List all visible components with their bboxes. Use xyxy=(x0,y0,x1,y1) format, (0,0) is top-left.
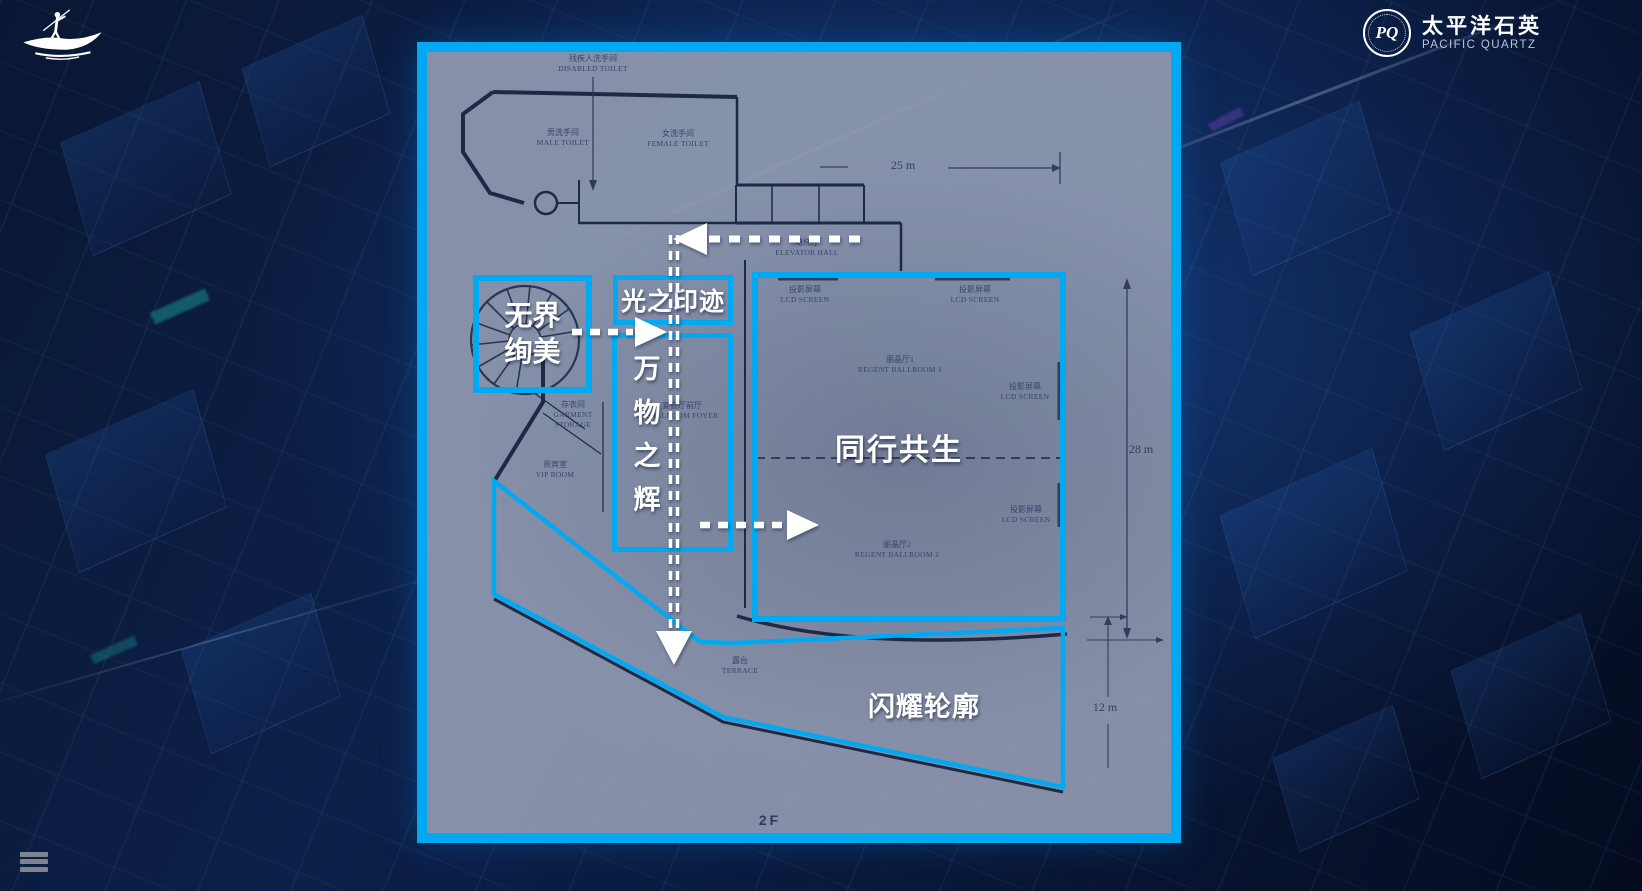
brand-name-en: PACIFIC QUARTZ xyxy=(1422,39,1542,51)
label-garment-storage: 存衣间 GARMENT STORAGE xyxy=(540,400,606,430)
boat-logo-icon xyxy=(16,6,108,64)
label-vip-room: 贵宾室 VIP ROOM xyxy=(536,460,575,480)
brand-text: 太平洋石英 PACIFIC QUARTZ xyxy=(1422,15,1542,51)
zone-label-shanyao-lunkuo[interactable]: 闪耀轮廓 xyxy=(868,685,980,724)
label-en: MALE TOILET xyxy=(537,138,589,148)
zone-box-guang-zhi-yinji[interactable]: 光之印迹 xyxy=(613,275,733,325)
floor-label: 2F xyxy=(759,812,781,828)
label-cn: 残疾人洗手间 xyxy=(558,54,627,64)
label-en: GARMENT STORAGE xyxy=(540,410,606,430)
label-en: DISABLED TOILET xyxy=(558,64,627,74)
label-terrace: 露台 TERRACE xyxy=(722,656,758,676)
zone-label-guang-zhi-yinji: 光之印迹 xyxy=(621,282,725,318)
label-en: TERRACE xyxy=(722,666,758,676)
label-cn: 露台 xyxy=(722,656,758,666)
label-cn: 存衣间 xyxy=(540,400,606,410)
label-male-toilet: 男洗手间 MALE TOILET xyxy=(537,128,589,148)
zone-label-wujie-xuanmei: 无界绚美 xyxy=(502,298,564,371)
label-female-toilet: 女洗手间 FEMALE TOILET xyxy=(647,129,709,149)
label-en: FEMALE TOILET xyxy=(647,139,709,149)
menu-bar xyxy=(20,852,48,857)
label-disabled-toilet: 残疾人洗手间 DISABLED TOILET xyxy=(558,54,627,74)
zone-box-wanwu-zhi-hui[interactable]: 万物之辉 xyxy=(612,333,733,552)
zone-label-wanwu-zhi-hui: 万物之辉 xyxy=(631,348,663,523)
brand-emblem-text: PQ xyxy=(1376,23,1399,43)
brand-emblem-icon: PQ xyxy=(1363,9,1411,57)
brand-name-cn: 太平洋石英 xyxy=(1422,15,1542,39)
zone-label-tongxing-gongsheng: 同行共生 xyxy=(835,425,983,469)
menu-bar xyxy=(20,867,48,872)
menu-button[interactable] xyxy=(20,852,48,874)
menu-bar xyxy=(20,859,48,864)
floorplan-panel: 残疾人洗手间 DISABLED TOILET 男洗手间 MALE TOILET … xyxy=(417,42,1181,843)
label-elevator-hall: 电梯厅 ELEVATOR HALL xyxy=(775,238,838,258)
label-en: VIP ROOM xyxy=(536,470,575,480)
zone-box-wujie-xuanmei[interactable]: 无界绚美 xyxy=(473,275,592,393)
label-cn: 男洗手间 xyxy=(537,128,589,138)
label-en: ELEVATOR HALL xyxy=(775,248,838,258)
label-cn: 电梯厅 xyxy=(775,238,838,248)
label-cn: 女洗手间 xyxy=(647,129,709,139)
dimension-12m: 12 m xyxy=(1093,700,1117,715)
dimension-25m: 25 m xyxy=(891,158,915,173)
floorplan-canvas: 残疾人洗手间 DISABLED TOILET 男洗手间 MALE TOILET … xyxy=(427,52,1171,833)
brand-logo: PQ 太平洋石英 PACIFIC QUARTZ xyxy=(1363,9,1542,57)
zone-box-tongxing-gongsheng[interactable]: 同行共生 xyxy=(752,272,1066,622)
label-cn: 贵宾室 xyxy=(536,460,575,470)
dimension-28m: 28 m xyxy=(1129,442,1153,457)
